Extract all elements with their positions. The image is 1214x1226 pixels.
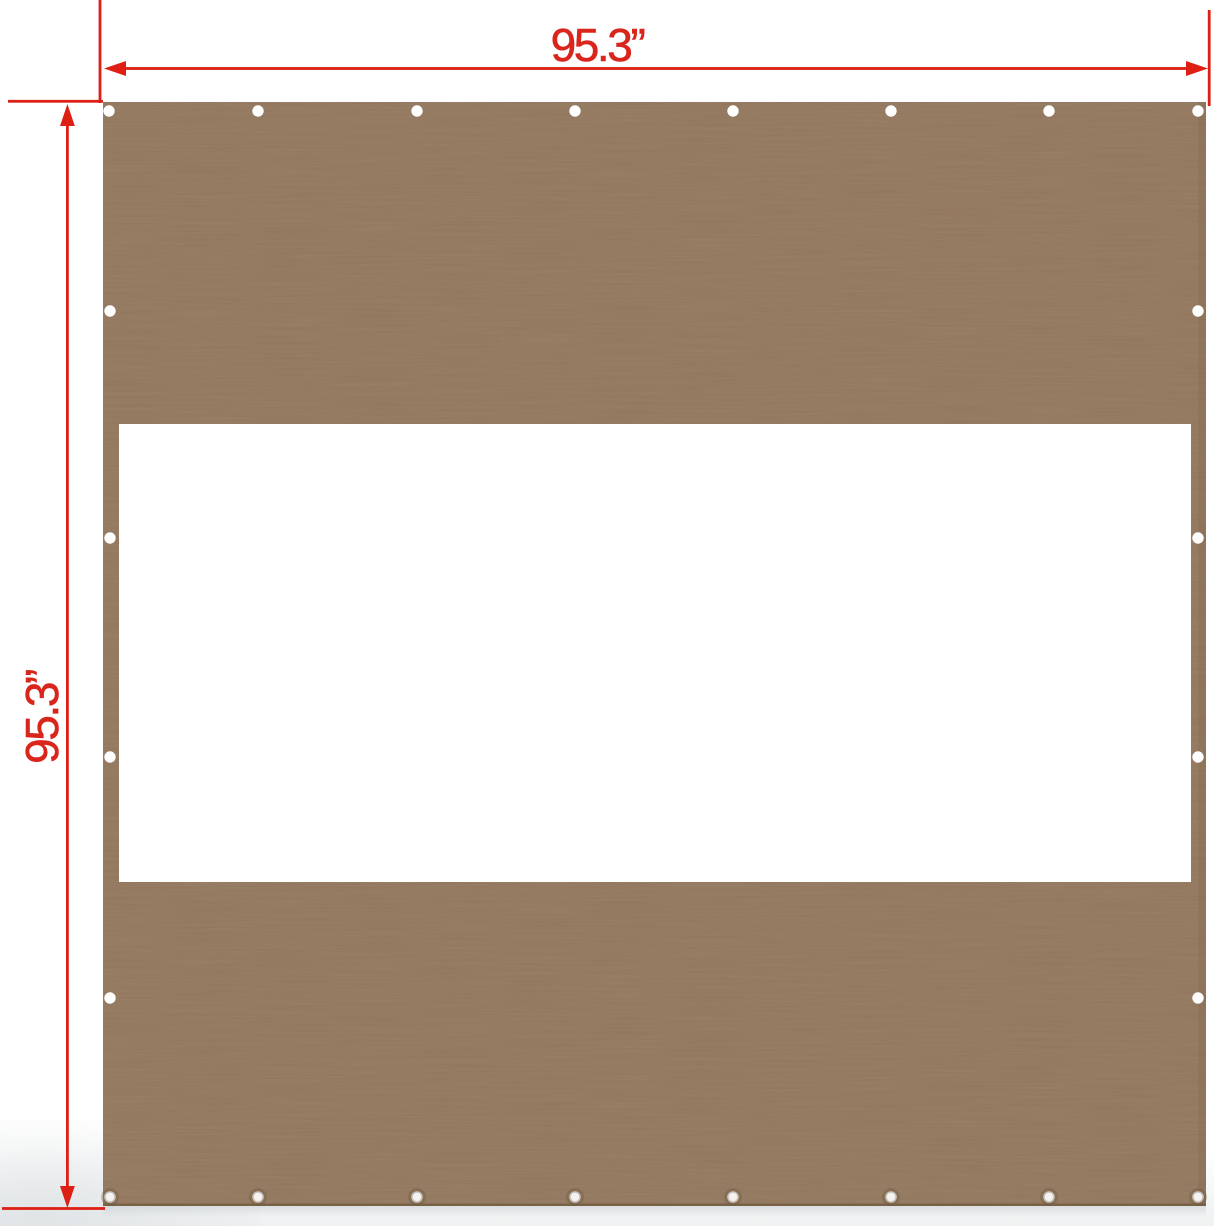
svg-text:95.3”: 95.3” [16, 670, 68, 764]
svg-text:95.3”: 95.3” [551, 19, 645, 71]
